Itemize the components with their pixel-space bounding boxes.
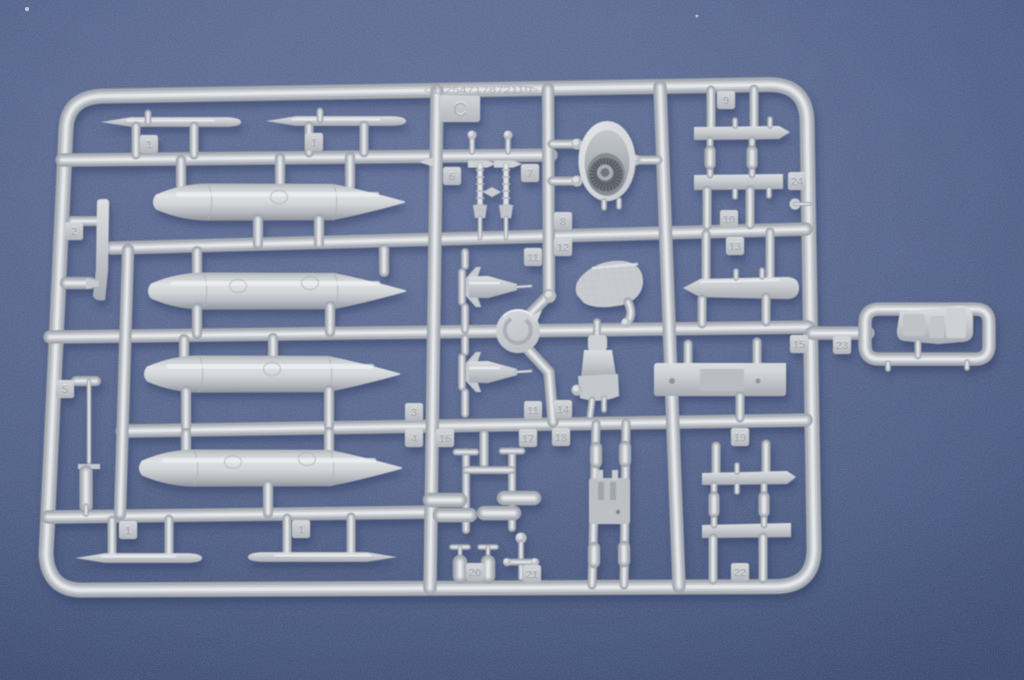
svg-text:8: 8 — [560, 216, 566, 228]
svg-text:1: 1 — [311, 137, 317, 149]
svg-text:22: 22 — [734, 567, 746, 579]
svg-text:1: 1 — [125, 525, 131, 537]
svg-text:9: 9 — [723, 95, 729, 107]
svg-text:2: 2 — [71, 226, 77, 238]
svg-text:24: 24 — [791, 176, 804, 188]
svg-text:16: 16 — [439, 433, 451, 445]
svg-text:5: 5 — [62, 384, 68, 396]
svg-text:17: 17 — [522, 433, 534, 445]
svg-text:23: 23 — [836, 340, 848, 352]
svg-text:4: 4 — [411, 433, 418, 445]
svg-text:6: 6 — [449, 171, 455, 183]
svg-text:3: 3 — [411, 407, 417, 419]
svg-text:87254717872110: 87254717872110 — [430, 85, 532, 95]
svg-text:13: 13 — [729, 241, 741, 253]
svg-text:14: 14 — [557, 404, 570, 416]
svg-text:11: 11 — [527, 405, 539, 417]
svg-text:18: 18 — [555, 432, 567, 444]
svg-text:19: 19 — [734, 432, 746, 444]
svg-text:21: 21 — [526, 569, 538, 581]
svg-text:10: 10 — [723, 214, 735, 226]
svg-text:1: 1 — [298, 524, 304, 536]
svg-text:7: 7 — [527, 168, 533, 180]
svg-text:11: 11 — [527, 252, 539, 264]
svg-text:1: 1 — [146, 139, 152, 151]
svg-text:15: 15 — [793, 339, 805, 351]
svg-text:12: 12 — [557, 242, 569, 254]
svg-text:20: 20 — [469, 567, 481, 579]
svg-text:C: C — [453, 100, 467, 121]
